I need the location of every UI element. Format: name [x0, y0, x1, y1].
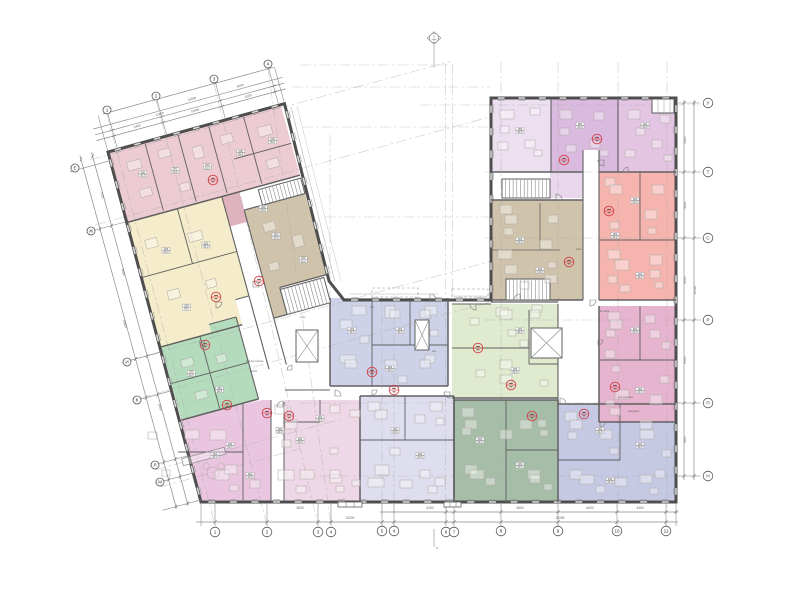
svg-text:xxx: xxx	[432, 349, 437, 353]
svg-text:И: И	[125, 360, 128, 365]
svg-text:40400: 40400	[693, 285, 697, 294]
svg-text:00.0: 00.0	[203, 245, 209, 249]
svg-text:6600: 6600	[683, 201, 687, 208]
svg-text:7: 7	[453, 530, 456, 535]
svg-text:7600: 7600	[683, 436, 687, 443]
svg-text:00.0: 00.0	[632, 200, 638, 204]
svg-text:00.0: 00.0	[317, 418, 323, 422]
svg-text:00.0: 00.0	[597, 430, 603, 434]
svg-text:00.0: 00.0	[297, 440, 303, 444]
svg-text:00.0: 00.0	[261, 208, 267, 212]
svg-text:2: 2	[155, 94, 158, 99]
svg-text:8200: 8200	[683, 276, 687, 283]
svg-text:26265: 26265	[556, 516, 565, 520]
svg-text:8300: 8300	[683, 356, 687, 363]
svg-text:00.0: 00.0	[392, 430, 398, 434]
svg-text:Р: Р	[706, 318, 709, 323]
svg-text:00.0: 00.0	[140, 174, 146, 178]
svg-text:00.0: 00.0	[637, 275, 643, 279]
svg-text:00.0: 00.0	[238, 152, 244, 156]
svg-text:2: 2	[266, 530, 269, 535]
svg-text:4: 4	[267, 62, 270, 67]
svg-text:00.0: 00.0	[517, 465, 523, 469]
svg-text:00.0: 00.0	[212, 455, 218, 459]
svg-text:00.0: 00.0	[537, 270, 543, 274]
svg-text:00.0: 00.0	[247, 475, 253, 479]
svg-text:xxx xxxxxxx: xxx xxxxxxx	[618, 395, 633, 399]
svg-text:00.0: 00.0	[517, 130, 523, 134]
svg-text:00.0: 00.0	[512, 370, 518, 374]
svg-text:00.0: 00.0	[517, 240, 523, 244]
svg-text:1: 1	[106, 108, 109, 113]
svg-text:xxxxx: xxxxx	[250, 369, 258, 373]
svg-text:М: М	[158, 480, 162, 485]
svg-text:00.0: 00.0	[417, 455, 423, 459]
svg-text:00.0: 00.0	[301, 259, 307, 263]
svg-text:00.0: 00.0	[632, 330, 638, 334]
svg-text:00.0: 00.0	[273, 236, 279, 240]
svg-text:xxxx: xxxx	[300, 315, 306, 319]
svg-text:4: 4	[393, 529, 396, 534]
svg-text:1c: 1c	[435, 546, 439, 550]
svg-text:00.0: 00.0	[270, 140, 276, 144]
svg-text:00.0: 00.0	[227, 445, 233, 449]
svg-text:00.0: 00.0	[397, 330, 403, 334]
svg-text:У: У	[707, 101, 710, 106]
svg-text:11: 11	[664, 529, 669, 534]
svg-text:9600: 9600	[296, 506, 303, 510]
svg-text:00.0: 00.0	[637, 445, 643, 449]
svg-text:00.0: 00.0	[277, 430, 283, 434]
svg-text:00.0: 00.0	[163, 250, 169, 254]
svg-text:xxxx: xxxx	[576, 247, 582, 251]
svg-text:xxx: xxx	[370, 305, 375, 309]
svg-text:24200: 24200	[346, 516, 355, 520]
svg-text:Л: Л	[153, 463, 156, 468]
svg-text:xx xxxx: xx xxxx	[600, 309, 610, 313]
svg-text:Т: Т	[707, 170, 710, 175]
svg-text:00.0: 00.0	[637, 390, 643, 394]
svg-text:00.0: 00.0	[517, 330, 523, 334]
svg-text:6: 6	[445, 530, 448, 535]
svg-text:xxxxxx xxxxxx: xxxxxx xxxxxx	[246, 359, 264, 363]
svg-text:00.0: 00.0	[612, 235, 618, 239]
svg-text:00.0: 00.0	[173, 170, 179, 174]
svg-text:П: П	[706, 401, 709, 406]
svg-text:3: 3	[213, 77, 216, 82]
svg-text:00.0: 00.0	[217, 389, 223, 393]
svg-text:3: 3	[317, 530, 320, 535]
svg-text:6900: 6900	[683, 136, 687, 143]
svg-text:00.0: 00.0	[184, 307, 190, 311]
svg-text:3400: 3400	[636, 506, 643, 510]
svg-text:00.0: 00.0	[477, 440, 483, 444]
svg-text:5: 5	[381, 529, 384, 534]
svg-text:4: 4	[330, 530, 333, 535]
svg-text:00.0: 00.0	[189, 373, 195, 377]
svg-text:00.0: 00.0	[387, 368, 393, 372]
svg-text:10: 10	[614, 529, 620, 534]
svg-text:6300: 6300	[426, 506, 433, 510]
svg-text:9: 9	[557, 529, 560, 534]
svg-text:00.0: 00.0	[349, 330, 355, 334]
svg-text:К: К	[136, 398, 139, 403]
svg-text:Н: Н	[706, 474, 709, 479]
svg-text:00.0: 00.0	[205, 166, 211, 170]
svg-text:xxxxxxxx: xxxxxxxx	[628, 409, 640, 413]
svg-text:6000: 6000	[586, 506, 593, 510]
svg-text:Е: Е	[73, 166, 76, 171]
svg-text:1: 1	[214, 530, 217, 535]
svg-text:8: 8	[500, 529, 503, 534]
svg-text:00.0: 00.0	[577, 125, 583, 129]
svg-text:00.0: 00.0	[642, 125, 648, 129]
svg-text:5600: 5600	[516, 506, 523, 510]
svg-text:00.0: 00.0	[607, 480, 613, 484]
